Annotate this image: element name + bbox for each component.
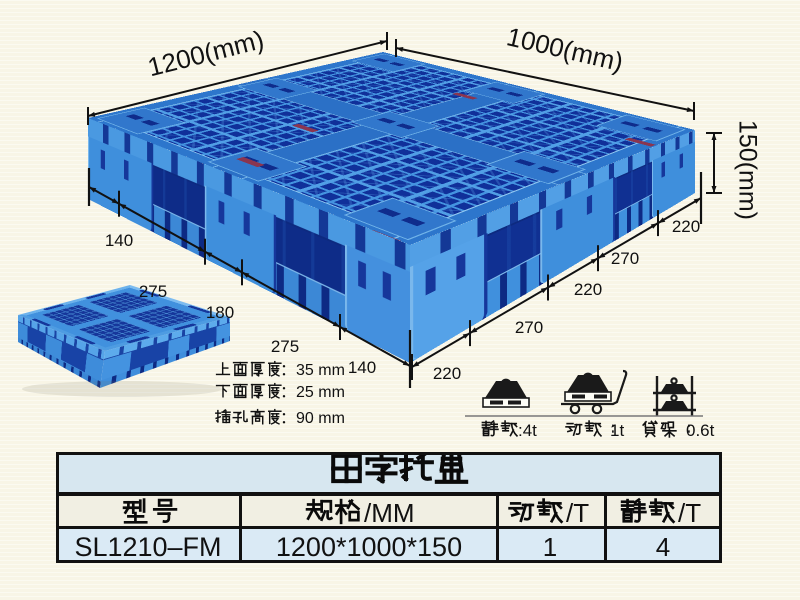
svg-text:140: 140 bbox=[105, 231, 133, 250]
svg-text:220: 220 bbox=[574, 280, 602, 299]
svg-text:0.6t: 0.6t bbox=[686, 421, 715, 440]
svg-text:220: 220 bbox=[433, 364, 461, 383]
svg-text:270: 270 bbox=[515, 318, 543, 337]
svg-text:1000(mm): 1000(mm) bbox=[504, 21, 626, 77]
svg-text:150(mm): 150(mm) bbox=[733, 120, 761, 220]
svg-text:270: 270 bbox=[611, 249, 639, 268]
svg-text:180: 180 bbox=[206, 303, 234, 322]
svg-text:1200(mm): 1200(mm) bbox=[145, 24, 267, 82]
svg-text:140: 140 bbox=[348, 358, 376, 377]
svg-text:275: 275 bbox=[139, 282, 167, 301]
svg-text:275: 275 bbox=[271, 337, 299, 356]
svg-text:：90 mm: ：90 mm bbox=[280, 410, 345, 427]
svg-text:220: 220 bbox=[672, 217, 700, 236]
svg-text:：25 mm: ：25 mm bbox=[280, 384, 345, 401]
svg-text:：35 mm: ：35 mm bbox=[280, 362, 345, 379]
svg-text:1t: 1t bbox=[610, 421, 624, 440]
svg-text::4t: :4t bbox=[518, 421, 537, 440]
